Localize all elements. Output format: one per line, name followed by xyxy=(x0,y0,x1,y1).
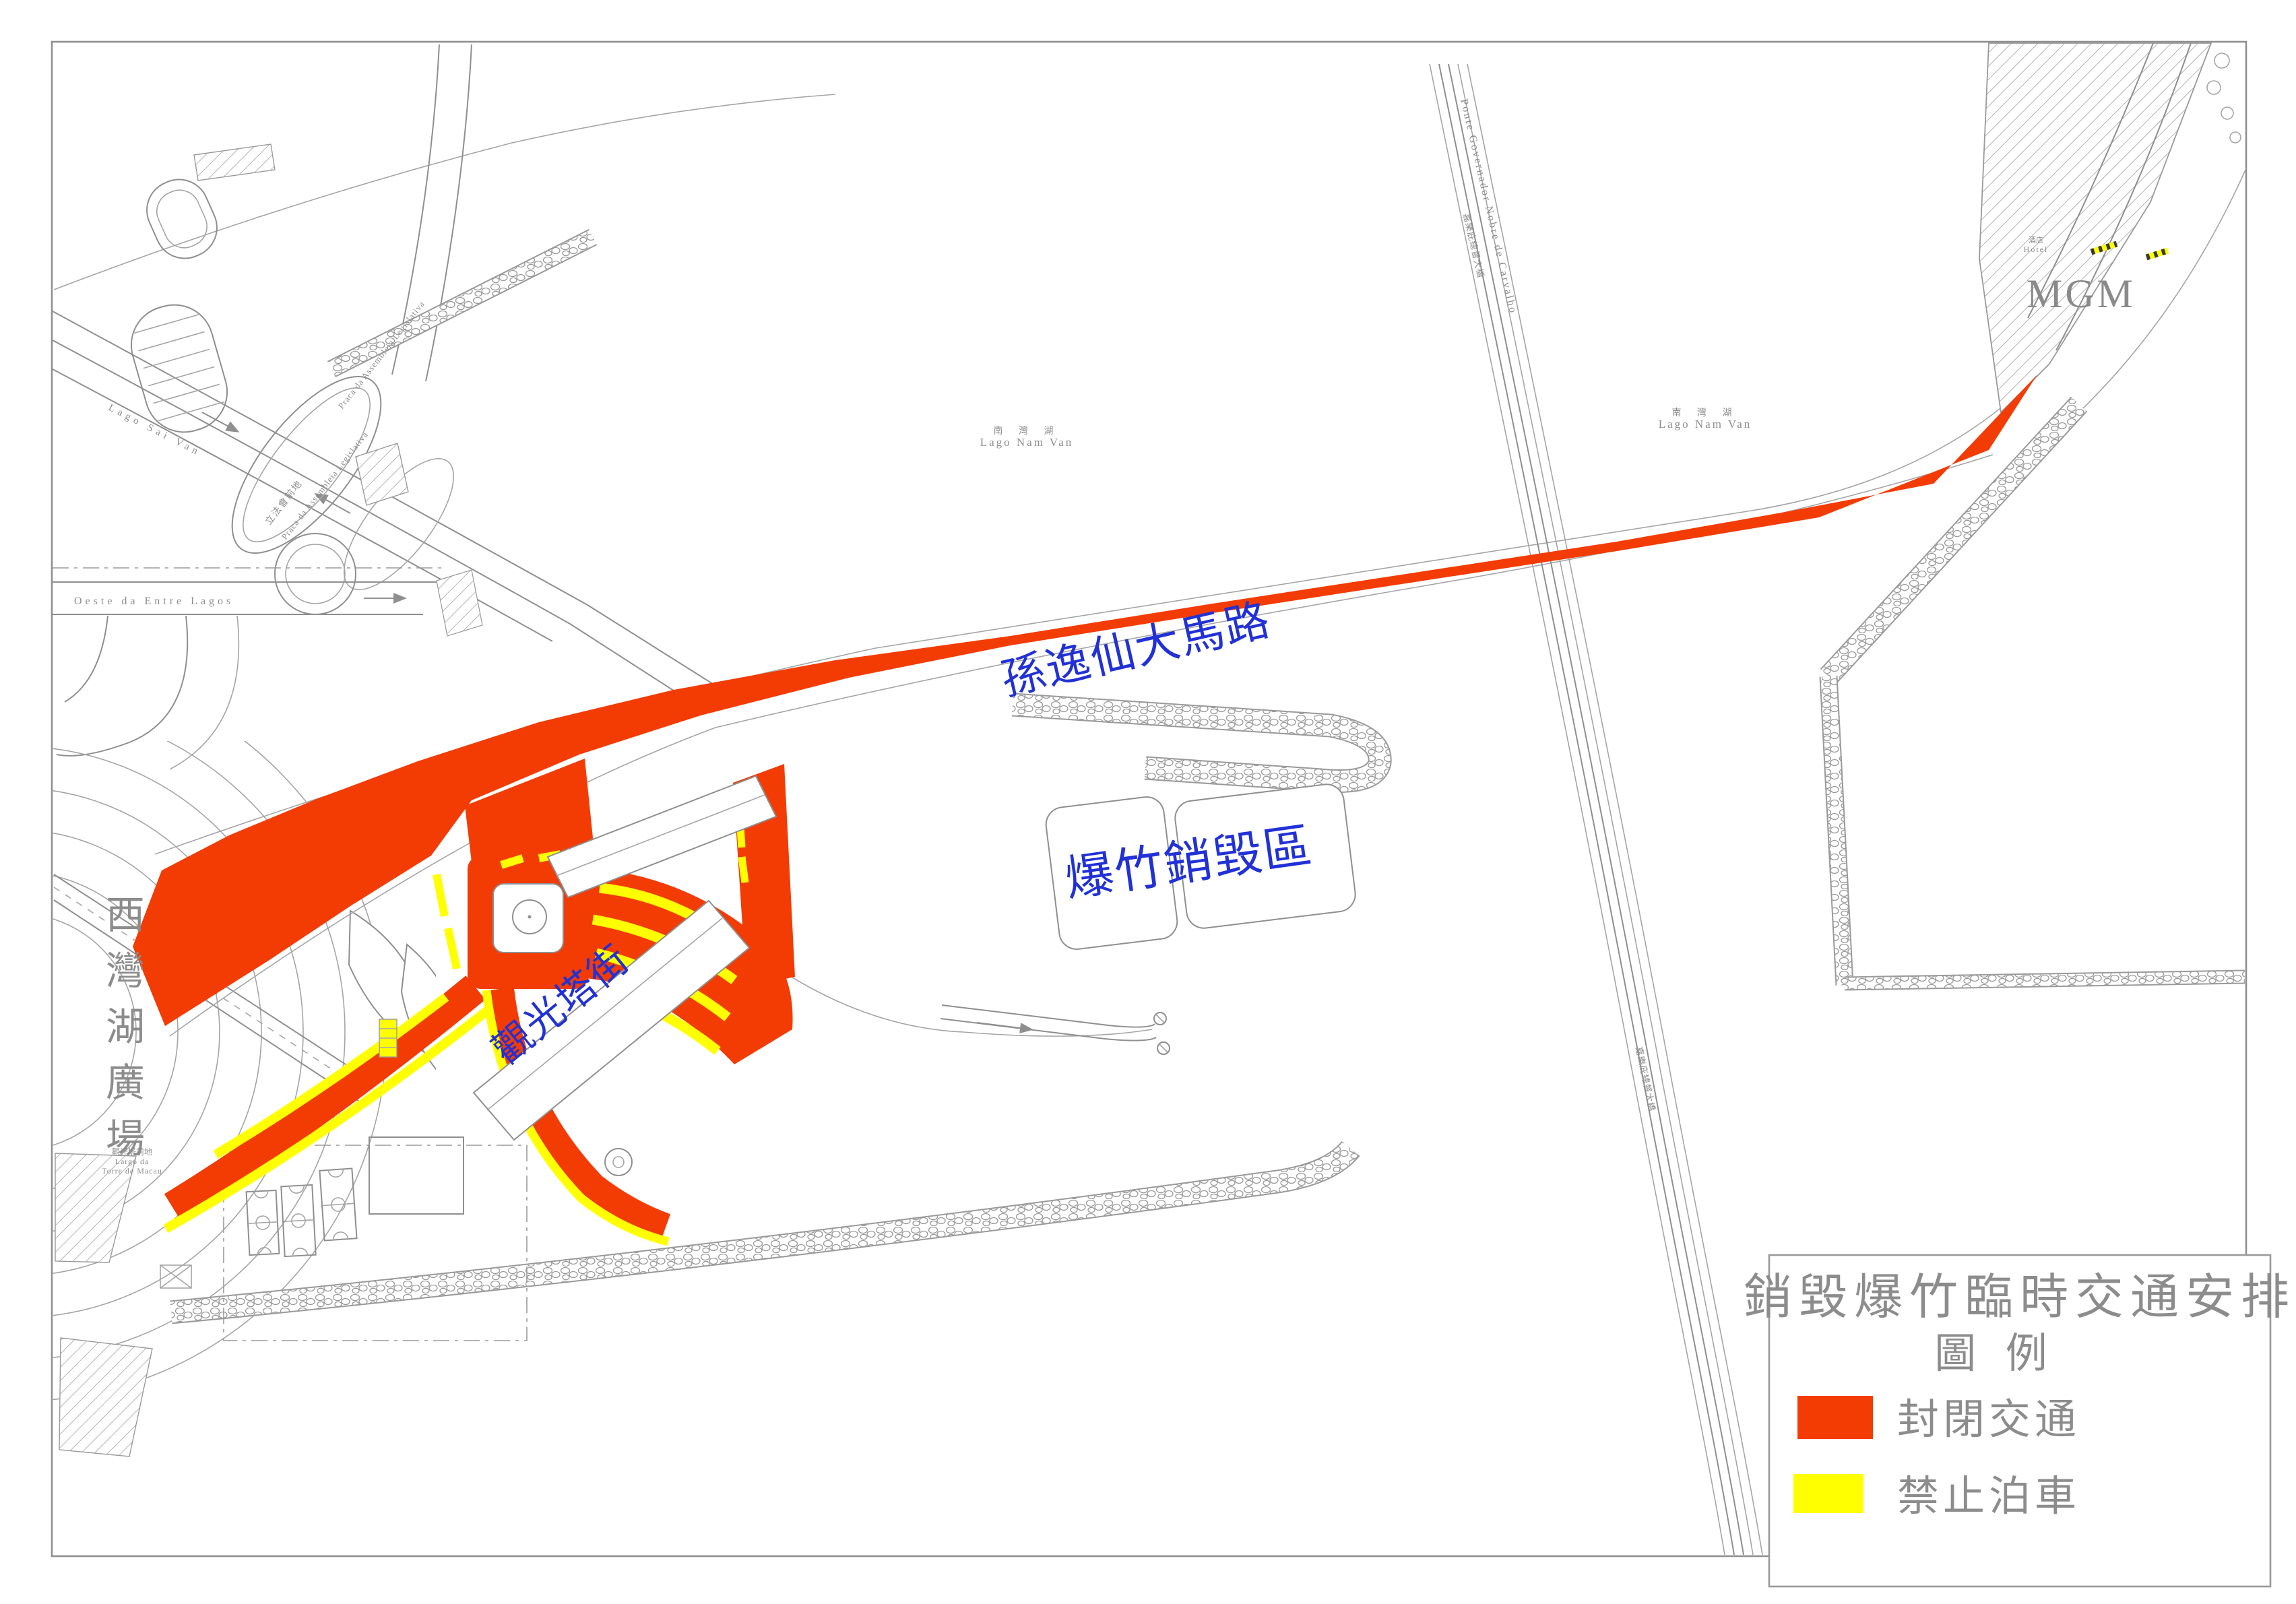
svg-text:南 灣 湖: 南 灣 湖 xyxy=(994,426,1060,437)
svg-text:灣: 灣 xyxy=(106,949,145,993)
mgm-label: MGM xyxy=(2027,271,2136,316)
svg-text:Torre de Macau: Torre de Macau xyxy=(102,1166,162,1176)
avenue-label: 孫逸仙大馬路 xyxy=(996,596,1275,705)
legend-swatch-no-parking xyxy=(1793,1474,1863,1513)
bridge-name-cn-upper: 嘉樂庇總督大橋 xyxy=(1461,212,1486,279)
bridge-name-pt: Ponte Governador Nobre de Carvalho xyxy=(1458,98,1519,315)
svg-text:Hotel: Hotel xyxy=(2024,245,2049,254)
svg-text:Lago Nam Van: Lago Nam Van xyxy=(1659,418,1752,430)
bridge xyxy=(1430,64,1762,1555)
legend-swatch-closed xyxy=(1797,1396,1873,1439)
assembly-plaza-labels: 立法會前地 Praca da Assembleia Legislativa Pr… xyxy=(263,298,426,542)
no-parking-grid-block xyxy=(379,1019,397,1057)
no-parking-overlay xyxy=(166,244,2168,1242)
svg-text:南 灣 湖: 南 灣 湖 xyxy=(1672,408,1739,418)
closed-southwest-band xyxy=(172,988,476,1207)
legend-title: 銷毀爆竹臨時交通安排 xyxy=(1744,1271,2296,1324)
legend-subtitle: 圖 例 xyxy=(1934,1331,2057,1377)
svg-text:Largo da: Largo da xyxy=(115,1157,150,1166)
svg-text:酒店: 酒店 xyxy=(2029,235,2043,245)
svg-text:西: 西 xyxy=(106,893,145,937)
bridge-name-cn-lower: 嘉樂庇總督大橋 xyxy=(1634,1046,1657,1113)
tower-footprint xyxy=(605,1149,632,1176)
legend-label-closed: 封閉交通 xyxy=(1897,1397,2080,1443)
svg-text:廣: 廣 xyxy=(106,1061,145,1105)
drawing-page: 孫逸仙大馬路 爆竹銷毀區 觀光塔街 西 灣 湖 廣 場 南 灣 湖 Lago N… xyxy=(0,0,2296,1604)
legend-label-no-parking: 禁止泊車 xyxy=(1897,1474,2080,1520)
svg-text:湖: 湖 xyxy=(106,1005,145,1049)
traffic-map-canvas: 孫逸仙大馬路 爆竹銷毀區 觀光塔街 西 灣 湖 廣 場 南 灣 湖 Lago N… xyxy=(0,0,2296,1604)
plaza-vertical-label: 西 灣 湖 廣 場 xyxy=(106,893,145,1161)
legend-box: 銷毀爆竹臨時交通安排 圖 例 封閉交通 禁止泊車 xyxy=(1744,1255,2296,1586)
svg-text:Lago Nam Van: Lago Nam Van xyxy=(980,436,1074,449)
entre-lagos-label: Oeste da Entre Lagos xyxy=(74,596,234,607)
lago-sai-van-label: Lago Sai Van xyxy=(106,402,203,459)
parking-area xyxy=(122,144,275,441)
closed-traffic-overlay xyxy=(133,375,2037,1227)
lake-label-east: 南 灣 湖 Lago Nam Van xyxy=(1659,408,1752,430)
lake-shore xyxy=(751,950,1170,1054)
svg-text:觀光塔前地: 觀光塔前地 xyxy=(112,1147,152,1157)
mgm-block xyxy=(1979,43,2246,412)
lake-label-west: 南 灣 湖 Lago Nam Van xyxy=(980,426,1074,449)
